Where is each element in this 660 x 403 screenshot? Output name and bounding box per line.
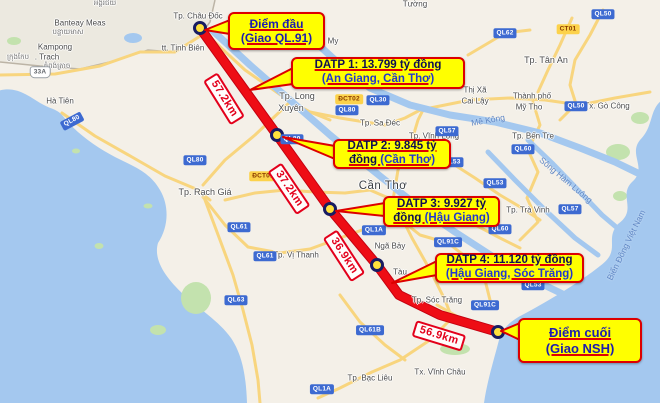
- datp1-provinces: (An Giang, Cần Thơ): [322, 73, 434, 87]
- callout-end-point: Điểm cuối (Giao NSH): [518, 318, 642, 363]
- tail-diem-dau: [205, 20, 230, 34]
- datp1-cost: DATP 1: 13.799 tỷ đồng: [315, 59, 442, 73]
- start-point-title: Điểm đầu: [249, 17, 303, 31]
- callout-start-point: Điểm đầu (Giao QL.91): [228, 12, 325, 50]
- callout-datp4: DATP 4: 11.120 tỷ đồng (Hậu Giang, Sóc T…: [435, 253, 584, 283]
- callout-datp3: DATP 3: 9.927 tỷ đồng (Hậu Giang): [383, 196, 500, 227]
- tail-datp3: [336, 203, 385, 216]
- route-map: Banteay Measបន្ទាយមាសKampong. Trachកំពង់…: [0, 0, 660, 403]
- datp2-provinces: đồng (Cần Thơ): [349, 154, 435, 168]
- datp4-provinces: (Hậu Giang, Sóc Trăng): [446, 268, 573, 282]
- datp3-provinces: đồng (Hậu Giang): [393, 212, 489, 226]
- tail-datp1: [250, 68, 293, 90]
- datp2-cost: DATP 2: 9.845 tỷ: [347, 140, 436, 154]
- end-point-title: Điểm cuối: [549, 325, 611, 341]
- tail-datp4: [392, 261, 437, 283]
- callout-datp1: DATP 1: 13.799 tỷ đồng (An Giang, Cần Th…: [291, 57, 465, 89]
- end-point-detail: (Giao NSH): [546, 341, 615, 357]
- tail-datp2: [283, 137, 335, 159]
- datp4-cost: DATP 4: 11.120 tỷ đồng: [446, 254, 572, 268]
- callout-datp2: DATP 2: 9.845 tỷ đồng (Cần Thơ): [333, 139, 451, 169]
- datp3-cost: DATP 3: 9.927 tỷ: [397, 198, 486, 212]
- start-point-detail: (Giao QL.91): [241, 31, 312, 45]
